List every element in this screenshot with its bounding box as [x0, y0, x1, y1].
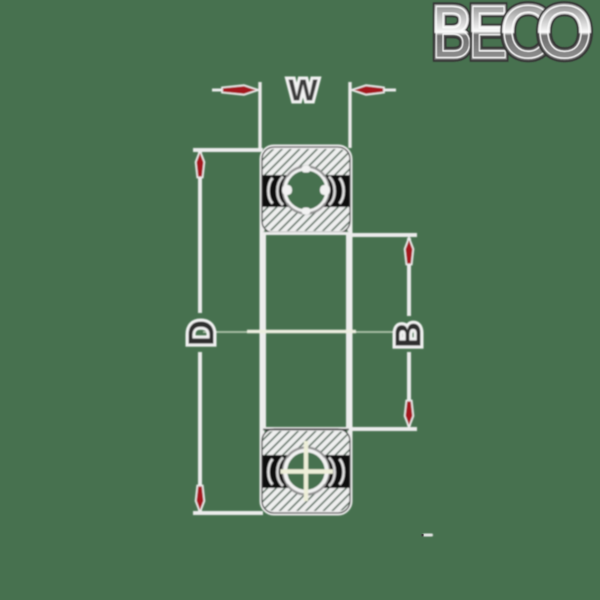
svg-text:D: D: [181, 320, 222, 346]
svg-text:B: B: [432, 0, 472, 73]
svg-text:B: B: [388, 322, 429, 348]
svg-text:O: O: [537, 0, 591, 73]
svg-text:W: W: [288, 73, 318, 108]
